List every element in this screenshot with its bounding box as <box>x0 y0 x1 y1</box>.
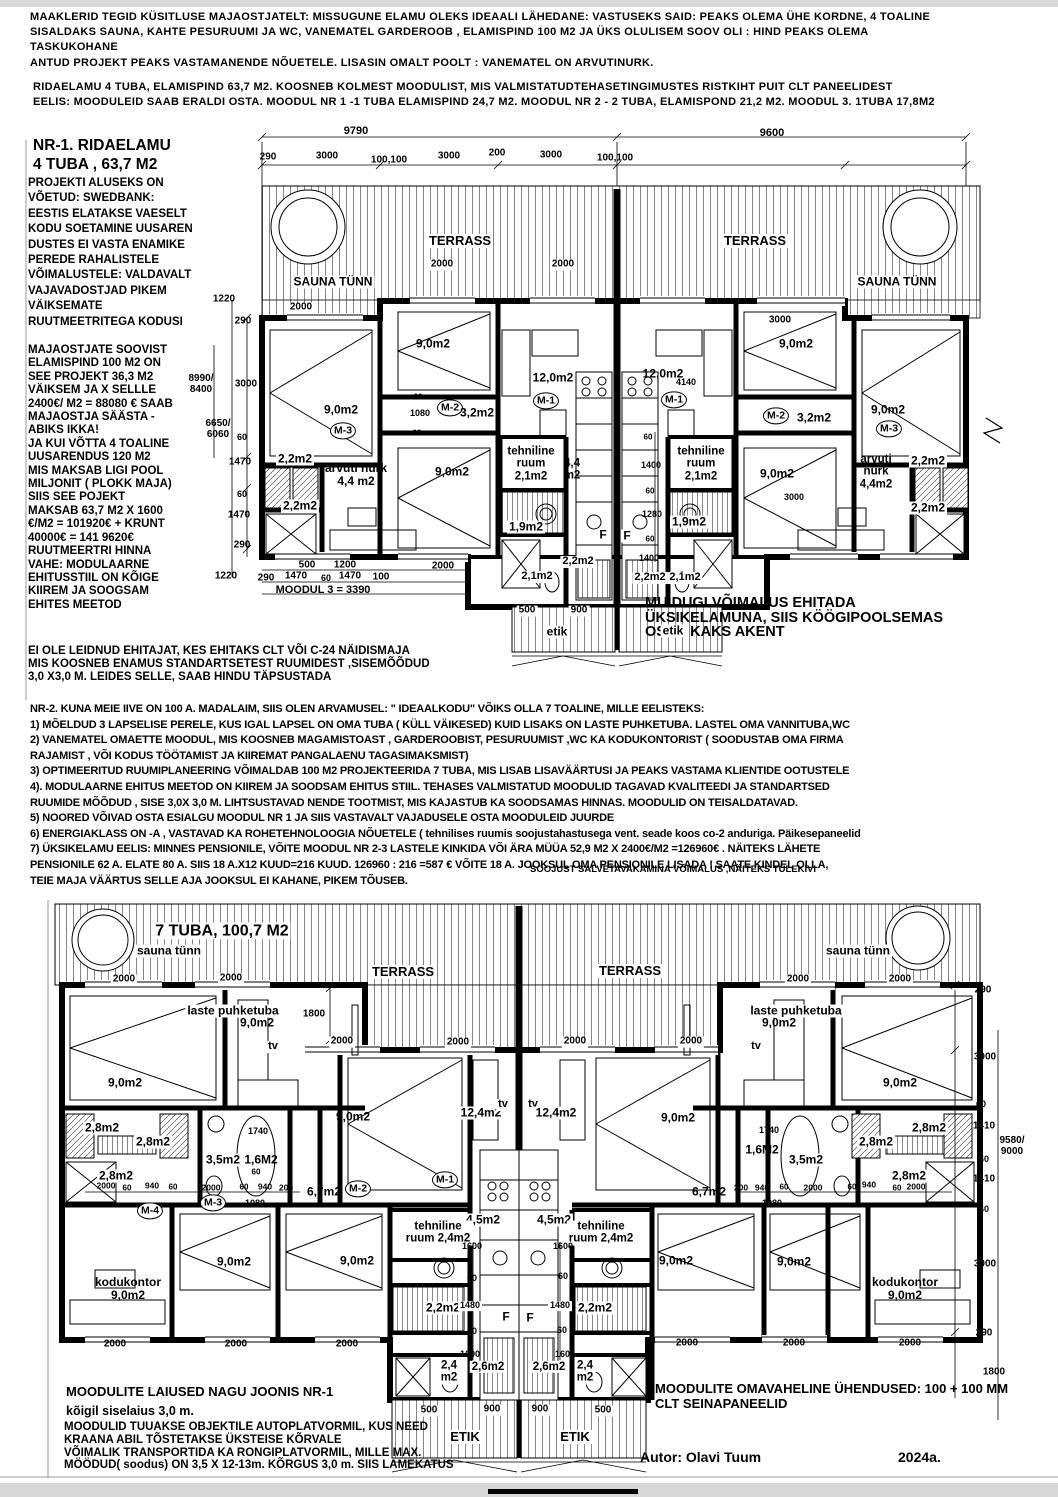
builder-note: EI OLE LEIDNUD EHITAJAT, KES EHITAKS CLT… <box>28 645 548 685</box>
architectural-sheet: MAAKLERID TEGID KÜSITLUSE MAJAOSTJATELT:… <box>0 0 1058 1497</box>
left-column-paragraph-1: PROJEKTI ALUSEKS ON VÕETUD: SWEDBANK: EE… <box>28 176 206 330</box>
nr2-description: NR-2. KUNA MEIE IIVE ON 100 A. MADALAIM,… <box>30 702 1058 889</box>
header-paragraph-project: ANTUD PROJEKT PEAKS VASTAMANENDE NÕUETEL… <box>30 57 654 69</box>
header-paragraph-rowhouse: RIDAELAMU 4 TUBA, ELAMISPIND 63,7 M2. KO… <box>33 80 1053 110</box>
author-credit: Autor: Olavi Tuum <box>640 1449 761 1465</box>
inner-width-note: kõigil siselaius 3,0 m. <box>66 1404 194 1418</box>
header-paragraph-main: MAAKLERID TEGID KÜSITLUSE MAJAOSTJATELT:… <box>30 10 1050 56</box>
plan1-title: NR-1. RIDAELAMU 4 TUBA , 63,7 M2 <box>33 136 171 174</box>
plan1-drawing <box>214 133 1002 666</box>
transport-note: MOODULID TUUAKSE OBJEKTILE AUTOPLATVORMI… <box>64 1421 624 1472</box>
nr2-small-note: SOOJUST SALVETAVAKAMINA VÕIMALUS ,NÄITEK… <box>530 864 816 875</box>
module-widths-note: MOODULITE LAIUSED NAGU JOONIS NR-1 <box>66 1384 333 1399</box>
single-house-option-note: MUIDUGI VÕIMALUS EHITADA ÜKSIKELAMUNA, S… <box>645 596 943 640</box>
module-connection-note: MOODULITE OMAVAHELINE ÜHENDUSED: 100 + 1… <box>655 1381 1008 1411</box>
year-label: 2024a. <box>898 1449 941 1465</box>
bottom-center-mark <box>488 1489 638 1494</box>
left-column-paragraph-2: MAJAOSTJATE SOOVIST ELAMISPIND 100 M2 ON… <box>28 344 206 612</box>
